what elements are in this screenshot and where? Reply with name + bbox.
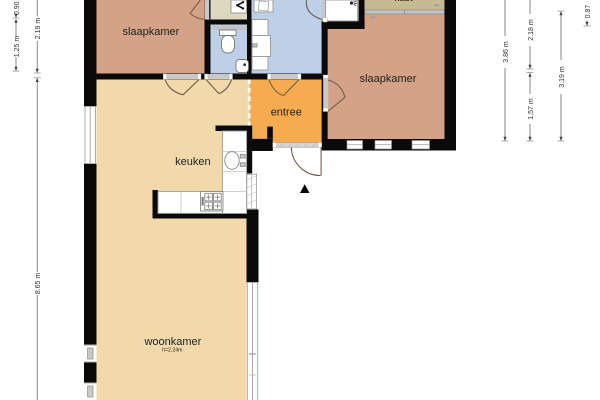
svg-text:h=2.24m: h=2.24m	[162, 347, 182, 353]
svg-text:0.90: 0.90	[14, 1, 21, 15]
svg-text:woonkamer: woonkamer	[143, 336, 201, 348]
svg-text:entree: entree	[271, 106, 302, 118]
svg-text:0.87: 0.87	[585, 5, 592, 19]
svg-text:2.18 m: 2.18 m	[528, 19, 535, 41]
svg-text:1.57 m: 1.57 m	[528, 98, 535, 120]
svg-text:3.19 m: 3.19 m	[559, 66, 566, 88]
svg-text:3.86 m: 3.86 m	[503, 41, 510, 63]
svg-text:2.19 m: 2.19 m	[35, 18, 42, 40]
svg-text:slaapkamer: slaapkamer	[360, 73, 417, 85]
svg-text:keuken: keuken	[175, 156, 210, 168]
svg-text:kast: kast	[394, 0, 413, 4]
svg-text:8.65 m: 8.65 m	[35, 273, 42, 295]
svg-text:1.25 m: 1.25 m	[14, 36, 21, 58]
svg-text:slaapkamer: slaapkamer	[122, 26, 179, 38]
